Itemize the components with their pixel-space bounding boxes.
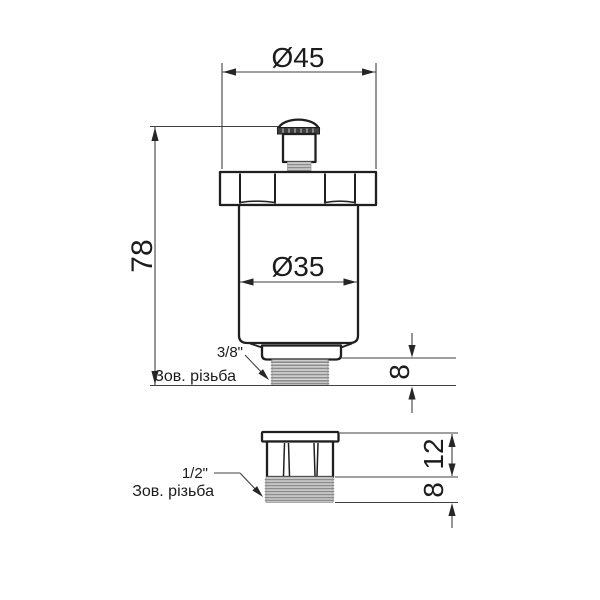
adapter-hex <box>267 442 333 478</box>
label-thread-size-adapter: 1/2" <box>182 465 208 482</box>
dim-thread-length-main: 8 <box>384 364 415 380</box>
dim-12: 12 <box>335 433 458 477</box>
main-thread-callout: 3/8" Зов. різьба <box>154 344 269 385</box>
dim-body-diameter: Ø35 <box>272 251 325 282</box>
body-collar <box>262 346 341 360</box>
dim-8-main: 8 <box>341 333 456 413</box>
label-thread-note-adapter: Зов. різьба <box>132 483 214 500</box>
label-thread-size-main: 3/8" <box>217 344 243 361</box>
technical-drawing: Ø45 78 Ø35 8 <box>0 0 600 600</box>
label-thread-note-main: Зов. різьба <box>154 368 236 385</box>
vent-cap <box>278 120 320 173</box>
main-view: Ø45 78 Ø35 8 <box>126 42 456 413</box>
dim-8-adapter: 8 <box>335 482 458 528</box>
adapter-thread-callout: 1/2" Зов. різьба <box>132 465 263 500</box>
dim-hex-height: 12 <box>418 438 449 469</box>
adapter-view: 12 8 1/2" Зов. різьба <box>132 432 458 528</box>
dim-top-diameter: Ø45 <box>272 42 325 73</box>
dim-overall-height: 78 <box>126 239 159 272</box>
hex-nut <box>220 172 376 205</box>
main-thread <box>272 360 329 386</box>
drawing-canvas: Ø45 78 Ø35 8 <box>0 0 600 600</box>
adapter-thread <box>266 477 334 503</box>
adapter-flange <box>262 432 339 442</box>
cap-body <box>283 134 316 162</box>
dim-thread-length-adapter: 8 <box>418 482 449 498</box>
